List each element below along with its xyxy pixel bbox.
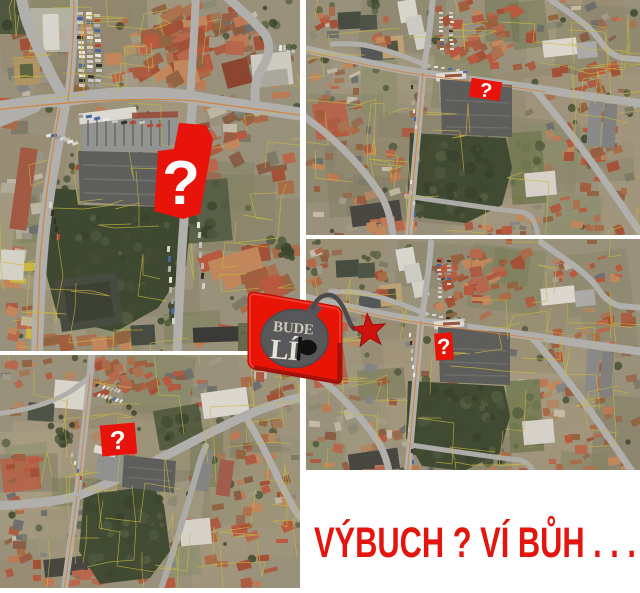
svg-text:VÝBUCH ? VÍ BŮH . . .: VÝBUCH ? VÍ BŮH . . .	[314, 515, 636, 567]
svg-text:LÍ: LÍ	[269, 334, 299, 367]
svg-text:?: ?	[436, 334, 451, 360]
svg-text:?: ?	[109, 424, 127, 455]
svg-text:?: ?	[162, 149, 200, 218]
